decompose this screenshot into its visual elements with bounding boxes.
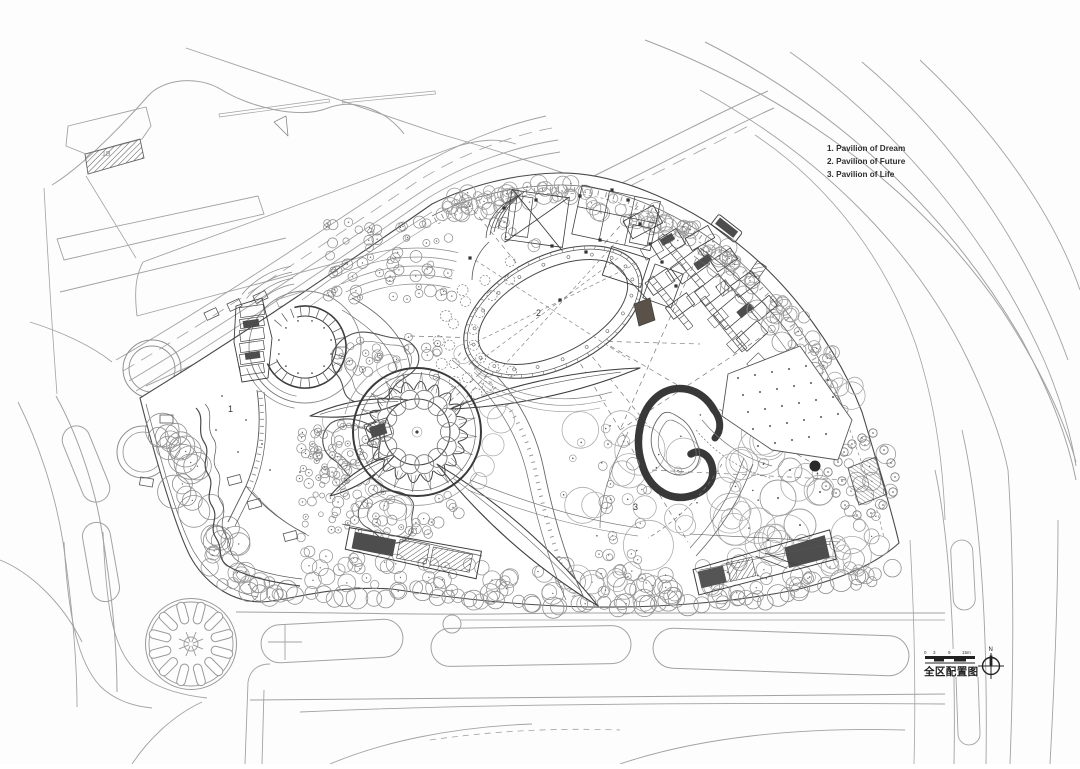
svg-text:3: 3 [633, 502, 638, 512]
svg-text:3. Pavilion of Life: 3. Pavilion of Life [827, 170, 895, 179]
svg-text:2. Pavilion of Future: 2. Pavilion of Future [827, 157, 906, 166]
svg-text:1. Pavilion of Dream: 1. Pavilion of Dream [827, 144, 905, 153]
svg-text:全区配置图: 全区配置图 [923, 665, 979, 678]
svg-text:1B: 1B [102, 151, 111, 158]
svg-text:1: 1 [228, 404, 233, 414]
svg-text:15m: 15m [962, 650, 971, 655]
svg-text:N: N [989, 647, 993, 653]
svg-text:2: 2 [536, 308, 541, 318]
